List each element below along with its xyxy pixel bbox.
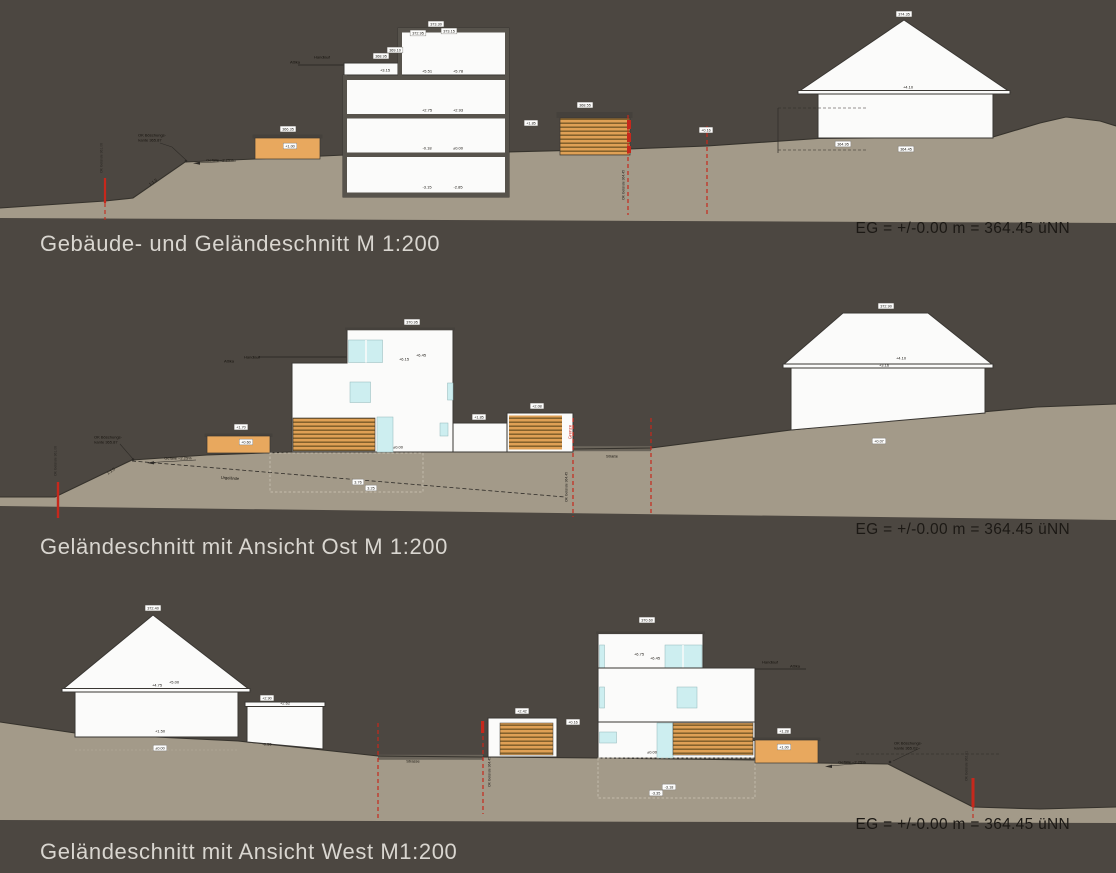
annotation-text: Gefälle ~2.25% (206, 157, 234, 162)
level-line-label: OK Gelände 361.06 (99, 143, 103, 173)
elevation-label: 369.10 (387, 47, 403, 53)
annotation-text: Attika (224, 358, 235, 363)
section-title: Geländeschnitt mit Ansicht Ost M 1:200 (40, 534, 448, 560)
annotation-text: Attika (790, 663, 801, 668)
annotation-text: Straße (606, 453, 619, 458)
svg-text:+2.62: +2.62 (280, 700, 291, 705)
svg-text:-3.15: -3.15 (422, 184, 432, 189)
svg-text:Straße: Straße (606, 453, 619, 458)
svg-text:374.35: 374.35 (898, 12, 910, 16)
svg-text:-3.35: -3.35 (652, 791, 661, 795)
section-ansicht-ost: 370.95372.90+1.70+0.60+1.85+2.08+0.073.7… (0, 291, 1116, 582)
annotation-text: Handlauf (244, 354, 261, 359)
elevation-label: +0.07 (872, 438, 886, 444)
section-title: Gebäude- und Geländeschnitt M 1:200 (40, 231, 440, 257)
annotation-text: +6.45 (650, 655, 661, 660)
section-title: Geländeschnitt mit Ansicht West M1:200 (40, 839, 457, 865)
annotation-text: -2.85 (453, 184, 463, 189)
svg-text:+6.45: +6.45 (650, 655, 661, 660)
svg-text:±0.00: ±0.00 (647, 749, 658, 754)
svg-text:Gefälle ~2.25%: Gefälle ~2.25% (164, 455, 192, 460)
garage-wood-door (481, 718, 557, 757)
annotation-text: +3.16 (879, 362, 890, 367)
svg-text:kante 365.02: kante 365.02 (894, 745, 918, 750)
svg-text:OK Gelände 364.45: OK Gelände 364.45 (621, 170, 625, 200)
garage-right (557, 112, 633, 155)
svg-text:+5.78: +5.78 (453, 68, 464, 73)
elevation-label: 370.60 (639, 617, 655, 623)
wood-slat-cladding (293, 418, 375, 451)
annex-left-orange (205, 434, 273, 454)
elevation-label: 364.95 (835, 141, 851, 147)
window-square (677, 687, 697, 708)
svg-text:366.35: 366.35 (282, 127, 294, 131)
elevation-label: +0.60 (239, 439, 253, 445)
svg-text:+6.45: +6.45 (416, 352, 427, 357)
annotation-text: -3.15 (422, 184, 432, 189)
svg-text:372.95: 372.95 (412, 31, 424, 35)
elevation-label: 3.25 (365, 485, 377, 491)
annotation-text: +2.62 (280, 700, 291, 705)
svg-text:+6.75: +6.75 (634, 651, 645, 656)
elevation-label: +2.90 (260, 695, 274, 701)
elevation-label: +2.42 (515, 708, 529, 714)
elevation-label: +0.16 (566, 719, 580, 725)
elevation-label: +1.85 (472, 414, 486, 420)
svg-text:+1.85: +1.85 (474, 415, 484, 419)
window-square (350, 382, 371, 403)
annotation-text: +6.45 (416, 352, 427, 357)
annex-right-garage (453, 413, 573, 452)
elevation-label: +1.00 (777, 744, 791, 750)
elevation-label: 368.55 (577, 102, 593, 108)
level-line-label: OK Gelände 364.45 (564, 472, 568, 502)
svg-text:+2.42: +2.42 (517, 709, 527, 713)
house-east-existing (783, 313, 993, 430)
elevation-label: +2.08 (530, 403, 544, 409)
svg-text:OK Gelände 362.01: OK Gelände 362.01 (964, 751, 968, 781)
annotation-text: kante 365.87 (94, 439, 118, 444)
svg-text:+4.10: +4.10 (903, 84, 914, 89)
svg-text:Handlauf: Handlauf (762, 659, 779, 664)
svg-text:372.40: 372.40 (147, 606, 159, 610)
annotation-text: ±0.00 (393, 444, 404, 449)
elevation-label: +1.00 (283, 143, 297, 149)
svg-text:+0.60: +0.60 (241, 440, 251, 444)
window-small (440, 423, 448, 436)
svg-text:3.76: 3.76 (354, 480, 361, 484)
svg-text:-3.18: -3.18 (665, 785, 674, 789)
elevation-label: +0.16 (699, 127, 713, 133)
svg-text:+2.08: +2.08 (532, 404, 542, 408)
svg-text:Strasse: Strasse (406, 758, 420, 763)
svg-text:364.45: 364.45 (900, 147, 912, 151)
window-narrow (600, 687, 605, 708)
level-line-label: OK Gelände 364.45 (621, 170, 625, 200)
svg-text:370.60: 370.60 (641, 618, 653, 622)
svg-text:3.25: 3.25 (367, 486, 374, 490)
annotation-text: +4.10 (896, 355, 907, 360)
annotation-text: +5.78 (453, 68, 464, 73)
svg-text:+1.00: +1.00 (779, 745, 789, 749)
elevation-label: +1.85 (524, 120, 538, 126)
elevation-label: 374.35 (896, 11, 912, 17)
svg-text:+0.16: +0.16 (701, 128, 711, 132)
annotation-text: +5.00 (169, 679, 180, 684)
boundary-label: Grenze (567, 424, 572, 439)
svg-text:Handlauf: Handlauf (314, 54, 331, 59)
annotation-text: +4.10 (903, 84, 914, 89)
svg-text:OK Gelände 364.45: OK Gelände 364.45 (487, 757, 491, 787)
svg-text:±0.00: ±0.00 (453, 145, 464, 150)
svg-text:373.30: 373.30 (430, 22, 442, 26)
svg-text:+4.75: +4.75 (152, 682, 163, 687)
annotation-text: ±0.00 (647, 749, 658, 754)
svg-text:+5.51: +5.51 (422, 68, 433, 73)
svg-text:Handlauf: Handlauf (244, 354, 261, 359)
datum-note: EG = +/-0.00 m = 364.45 üNN (856, 521, 1070, 539)
svg-text:368.95: 368.95 (375, 54, 387, 58)
datum-note: EG = +/-0.00 m = 364.45 üNN (856, 220, 1070, 238)
svg-text:370.95: 370.95 (406, 320, 418, 324)
svg-text:OK Gelände 364.45: OK Gelände 364.45 (564, 472, 568, 502)
annotation-text: +2.75 (422, 107, 433, 112)
annotation-text: kante 365.02 (894, 745, 918, 750)
svg-text:372.90: 372.90 (880, 304, 892, 308)
elevation-label: 372.95 (410, 30, 426, 36)
glass-door (657, 723, 673, 758)
annotation-text: Attika (290, 59, 301, 64)
elevation-label: 3.76 (352, 479, 364, 485)
svg-text:+0.07: +0.07 (874, 439, 884, 443)
svg-text:369.10: 369.10 (389, 48, 401, 52)
annotation-text: kante 365.87 (138, 137, 162, 142)
svg-text:±0.00: ±0.00 (155, 746, 164, 750)
svg-text:+2.93: +2.93 (453, 107, 464, 112)
annotation-text: Handlauf (762, 659, 779, 664)
window-narrow (600, 645, 605, 668)
elevation-label: 373.30 (428, 21, 444, 27)
svg-text:+5.00: +5.00 (169, 679, 180, 684)
elevation-label: 364.45 (898, 146, 914, 152)
svg-text:kante 365.87: kante 365.87 (94, 439, 118, 444)
svg-text:kante 365.87: kante 365.87 (138, 137, 162, 142)
svg-text:+6.15: +6.15 (399, 356, 410, 361)
house-right (778, 20, 1010, 153)
svg-text:+2.90: +2.90 (262, 696, 272, 700)
elevation-label: 368.95 (373, 53, 389, 59)
garage-flat-roof (245, 702, 325, 749)
level-line-label: OK Gelände 361.06 (53, 446, 57, 476)
elevation-label: 372.40 (145, 605, 161, 611)
glass-door (377, 417, 393, 452)
svg-text:+4.10: +4.10 (896, 355, 907, 360)
svg-text:+1.28: +1.28 (779, 729, 789, 733)
svg-text:Gefälle ~2.25%: Gefälle ~2.25% (206, 157, 234, 162)
svg-text:+2.75: +2.75 (422, 107, 433, 112)
wood-slat-cladding (673, 723, 753, 755)
elevation-label: +1.28 (777, 728, 791, 734)
annotation-text: +1.50 (155, 728, 166, 733)
svg-text:OK Gelände 361.06: OK Gelände 361.06 (53, 446, 57, 476)
svg-text:-0.18: -0.18 (422, 145, 432, 150)
annotation-text: -0.18 (422, 145, 432, 150)
svg-text:+3.15: +3.15 (380, 67, 391, 72)
svg-text:368.55: 368.55 (579, 103, 591, 107)
annotation-text: +3.15 (380, 67, 391, 72)
elevation-label: -3.35 (649, 790, 663, 796)
elevation-label: ±0.00 (153, 745, 167, 751)
svg-text:-2.85: -2.85 (453, 184, 463, 189)
annotation-text: +2.93 (453, 107, 464, 112)
elevation-label: 370.95 (404, 319, 420, 325)
annotation-text: -0.55 (262, 741, 272, 746)
annotation-text: +6.15 (399, 356, 410, 361)
svg-text:±0.00: ±0.00 (393, 444, 404, 449)
annotation-text: Gefälle ~2.25% (164, 455, 192, 460)
svg-text:+1.50: +1.50 (155, 728, 166, 733)
elevation-label: 366.35 (280, 126, 296, 132)
svg-text:364.95: 364.95 (837, 142, 849, 146)
svg-text:-0.55: -0.55 (262, 741, 272, 746)
svg-text:Attika: Attika (224, 358, 235, 363)
svg-text:+1.00: +1.00 (285, 144, 295, 148)
svg-text:Attika: Attika (290, 59, 301, 64)
svg-text:+3.16: +3.16 (879, 362, 890, 367)
level-line-label: OK Gelände 362.01 (964, 751, 968, 781)
annotation-text: Handlauf (314, 54, 331, 59)
window-narrow (448, 383, 454, 400)
datum-note: EG = +/-0.00 m = 364.45 üNN (856, 816, 1070, 834)
svg-text:373.15: 373.15 (443, 29, 455, 33)
svg-text:Attika: Attika (790, 663, 801, 668)
section-gebaeude-gelaendeschnitt: 372.95373.30373.15368.95369.10+3.15366.3… (0, 0, 1116, 291)
level-line-label: OK Gelände 364.45 (487, 757, 491, 787)
elevation-label: +1.70 (234, 424, 248, 430)
annotation-text: Gefälle ~2.25% (838, 759, 866, 764)
annotation-text: Strasse (406, 758, 420, 763)
annotation-text: ±0.00 (453, 145, 464, 150)
elevation-label: 373.15 (441, 28, 457, 34)
section-ansicht-west: 372.40+2.90+2.42370.60+1.28+1.00+0.16-3.… (0, 582, 1116, 873)
wood-slat-garage-door (509, 416, 562, 450)
elevation-label: -3.18 (662, 784, 676, 790)
window-small (600, 732, 617, 743)
svg-text:+1.85: +1.85 (526, 121, 536, 125)
annex-orange (753, 738, 821, 764)
annotation-text: +6.75 (634, 651, 645, 656)
svg-text:OK Gelände 361.06: OK Gelände 361.06 (99, 143, 103, 173)
annotation-text: +4.75 (152, 682, 163, 687)
svg-text:Grenze: Grenze (567, 424, 572, 439)
building-cross-section (343, 28, 509, 197)
svg-text:+1.70: +1.70 (236, 425, 246, 429)
svg-text:Gefälle ~2.25%: Gefälle ~2.25% (838, 759, 866, 764)
elevation-label: 372.90 (878, 303, 894, 309)
svg-text:+0.16: +0.16 (568, 720, 578, 724)
annotation-text: +5.51 (422, 68, 433, 73)
